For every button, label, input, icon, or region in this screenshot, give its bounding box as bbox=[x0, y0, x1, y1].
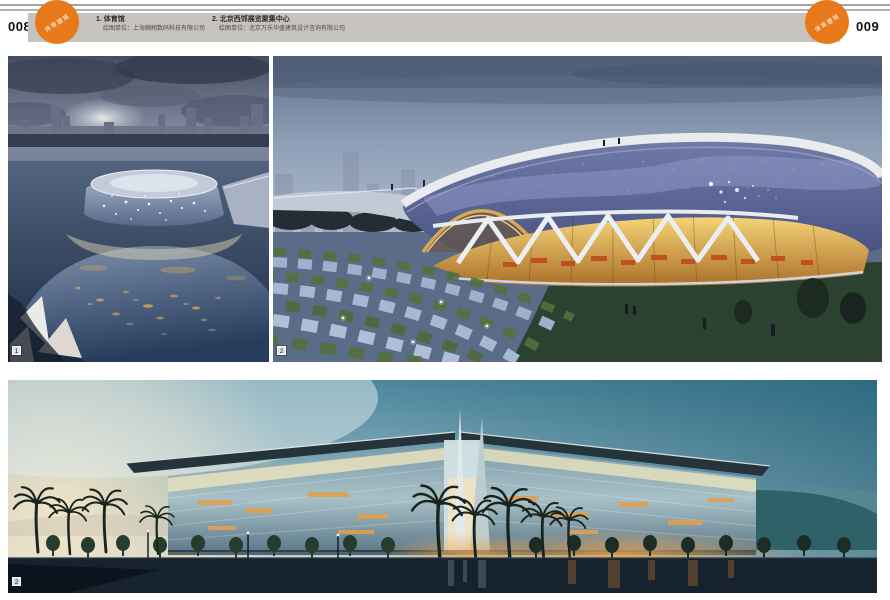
figure-number-badge: 2 bbox=[12, 577, 21, 586]
figure-3-glass-building-render: 2 bbox=[8, 380, 877, 593]
glass-building-evening-render-image bbox=[8, 380, 877, 593]
top-rule-2 bbox=[0, 9, 890, 11]
gymnasium-night-render-image bbox=[8, 56, 269, 362]
exhibition-center-dusk-render-image bbox=[273, 56, 882, 362]
figure-1-gymnasium-render: 1 bbox=[8, 56, 269, 362]
figure-number-badge: 2 bbox=[277, 346, 286, 355]
caption-1-credit: 绘图单位：上海翱翔数码科技有限公司 bbox=[96, 25, 205, 34]
clouds bbox=[273, 56, 882, 104]
treeline bbox=[8, 134, 269, 147]
caption-2-title: 2. 北京西郊展览聚集中心 bbox=[212, 15, 345, 25]
category-badge-left: 体育建筑 bbox=[35, 0, 79, 44]
caption-project-2: 2. 北京西郊展览聚集中心 绘图单位：北京万乐华盛建筑设计咨询有限公司 bbox=[212, 15, 345, 34]
caption-2-credit: 绘图单位：北京万乐华盛建筑设计咨询有限公司 bbox=[212, 25, 345, 34]
caption-1-title: 1. 体育馆 bbox=[96, 15, 205, 25]
category-badge-right: 体育建筑 bbox=[805, 0, 849, 44]
category-badge-left-label: 体育建筑 bbox=[43, 11, 72, 33]
figure-number-badge: 1 bbox=[12, 346, 21, 355]
book-spread-page: 008 009 体育建筑 体育建筑 1. 体育馆 绘图单位：上海翱翔数码科技有限… bbox=[0, 0, 890, 600]
figure-2-exhibition-center-render: 2 bbox=[273, 56, 882, 362]
top-rule-1 bbox=[0, 4, 890, 6]
river-band bbox=[8, 147, 269, 161]
caption-project-1: 1. 体育馆 绘图单位：上海翱翔数码科技有限公司 bbox=[96, 15, 205, 34]
page-number-right: 009 bbox=[856, 19, 879, 34]
category-badge-right-label: 体育建筑 bbox=[813, 11, 842, 33]
